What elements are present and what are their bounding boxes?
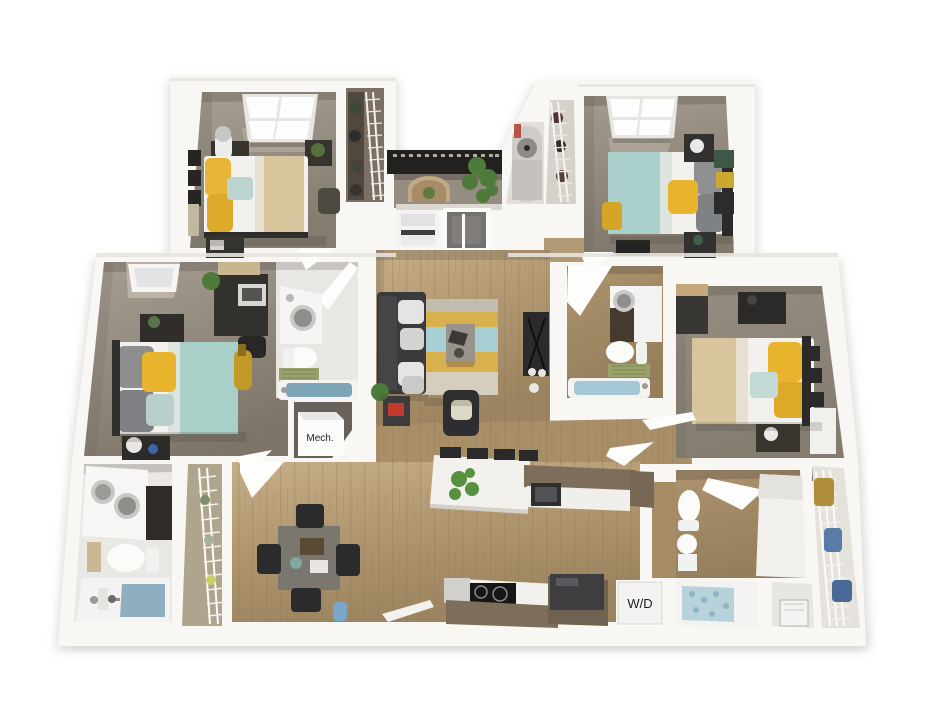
svg-text:W/D: W/D	[627, 596, 652, 611]
svg-text:Mech.: Mech.	[306, 433, 333, 444]
